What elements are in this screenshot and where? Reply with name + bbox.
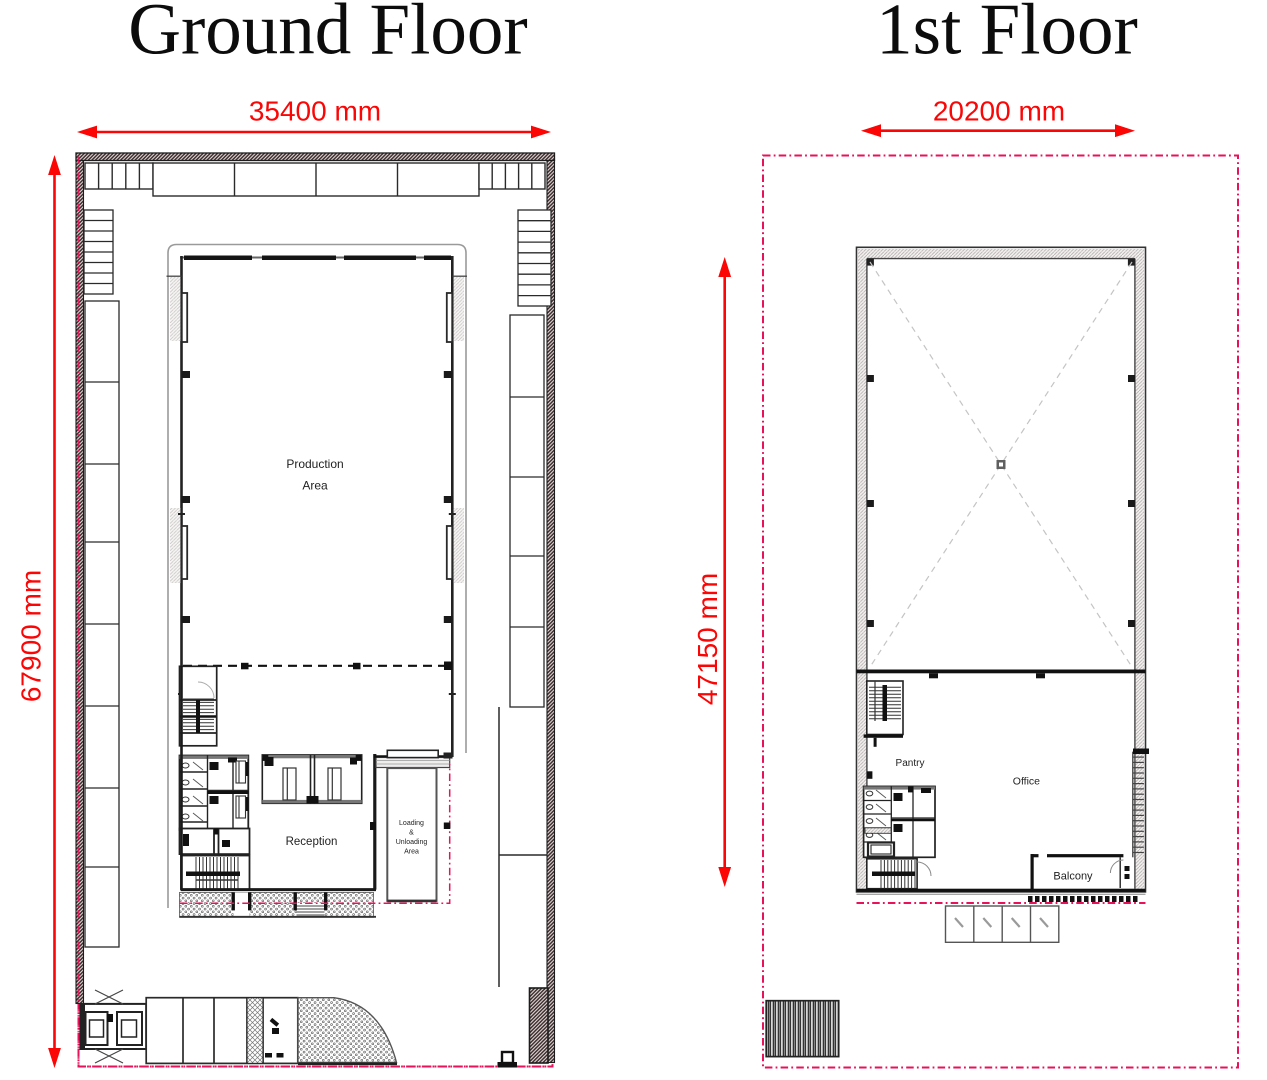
svg-text:Area: Area [302,479,328,493]
svg-text:Office: Office [1013,776,1040,788]
svg-text:35400 mm: 35400 mm [249,96,381,127]
svg-text:Production: Production [286,457,343,471]
svg-text:Unloading: Unloading [396,839,428,846]
svg-text:1st Floor: 1st Floor [876,0,1138,70]
svg-text:67900 mm: 67900 mm [16,570,47,702]
svg-text:Pantry: Pantry [896,758,925,769]
svg-text:20200 mm: 20200 mm [933,96,1065,127]
svg-text:Loading: Loading [399,820,424,827]
svg-text:Ground Floor: Ground Floor [128,0,527,70]
svg-text:47150 mm: 47150 mm [692,573,723,705]
svg-text:Area: Area [404,849,419,856]
svg-text:&: & [409,830,414,837]
svg-text:Balcony: Balcony [1053,871,1093,883]
svg-text:Reception: Reception [286,836,338,848]
